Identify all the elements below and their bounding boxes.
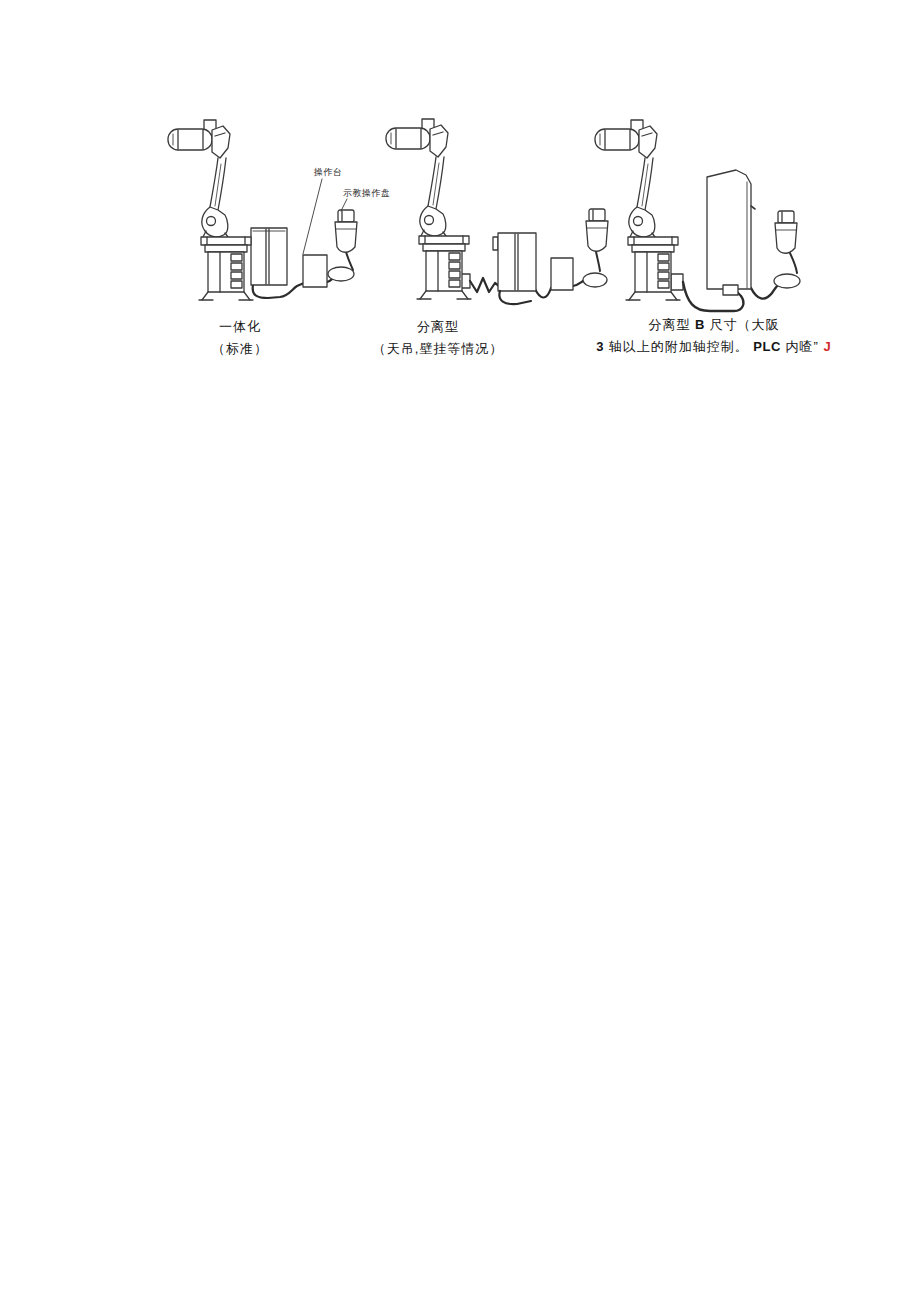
figure-separated-drawing (386, 119, 608, 304)
pendant-leader-line (341, 199, 347, 211)
caption-bold-plc: PLC (753, 339, 781, 354)
robot-arm (595, 120, 680, 300)
robot-arm (168, 120, 253, 300)
console-annotation-label: 操作台 (314, 166, 343, 179)
caption-integrated: 一体化 （标准） (160, 316, 320, 360)
controller-cabinet (493, 233, 536, 304)
teach-pendant (775, 211, 797, 253)
robot-arm (386, 119, 471, 299)
cable-loop (774, 274, 800, 288)
teach-pendant (335, 210, 357, 252)
operator-console-box (551, 258, 573, 290)
controller-cabinet (251, 228, 287, 285)
caption-integrated-line1: 一体化 (160, 316, 320, 338)
caption-text: 轴以上的附加轴控制。 (604, 339, 753, 354)
caption-separated-line1: 分离型 (350, 316, 526, 338)
cable-robot-to-cabinet (470, 278, 499, 292)
cable-cabinet-to-console (535, 288, 551, 298)
cable-loop (583, 273, 607, 287)
teach-pendant (586, 209, 608, 251)
pendant-annotation-label: 示教操作盘 (343, 187, 391, 200)
console-leader-line (303, 179, 322, 254)
caption-text: 内喳” (781, 339, 824, 354)
figure-integrated-drawing (168, 120, 357, 300)
operator-console-box (303, 255, 327, 287)
cable-loop (328, 267, 354, 281)
caption-bold-3: 3 (596, 339, 604, 354)
caption-separated-b-line1: 分离型 B 尺寸（大阪 (596, 314, 832, 336)
caption-bold-b: B (695, 317, 705, 332)
caption-red-j: J (823, 339, 831, 354)
caption-text: 分离型 (648, 317, 695, 332)
controller-cabinet-tall (707, 170, 755, 295)
caption-separated-line2: （天吊,壁挂等情况） (350, 338, 526, 360)
figure-separated-b-drawing (595, 120, 800, 311)
base-connector (671, 274, 683, 290)
caption-separated-b-line2: 3 轴以上的附加轴控制。 PLC 内喳” J (596, 336, 832, 358)
caption-integrated-line2: （标准） (160, 338, 320, 360)
caption-text: 尺寸（大阪 (705, 317, 780, 332)
cable-console-to-pendant (573, 281, 583, 286)
cable-cabinet-to-pendant (751, 285, 778, 299)
caption-separated-b: 分离型 B 尺寸（大阪 3 轴以上的附加轴控制。 PLC 内喳” J (596, 314, 832, 358)
caption-separated: 分离型 （天吊,壁挂等情况） (350, 316, 526, 360)
